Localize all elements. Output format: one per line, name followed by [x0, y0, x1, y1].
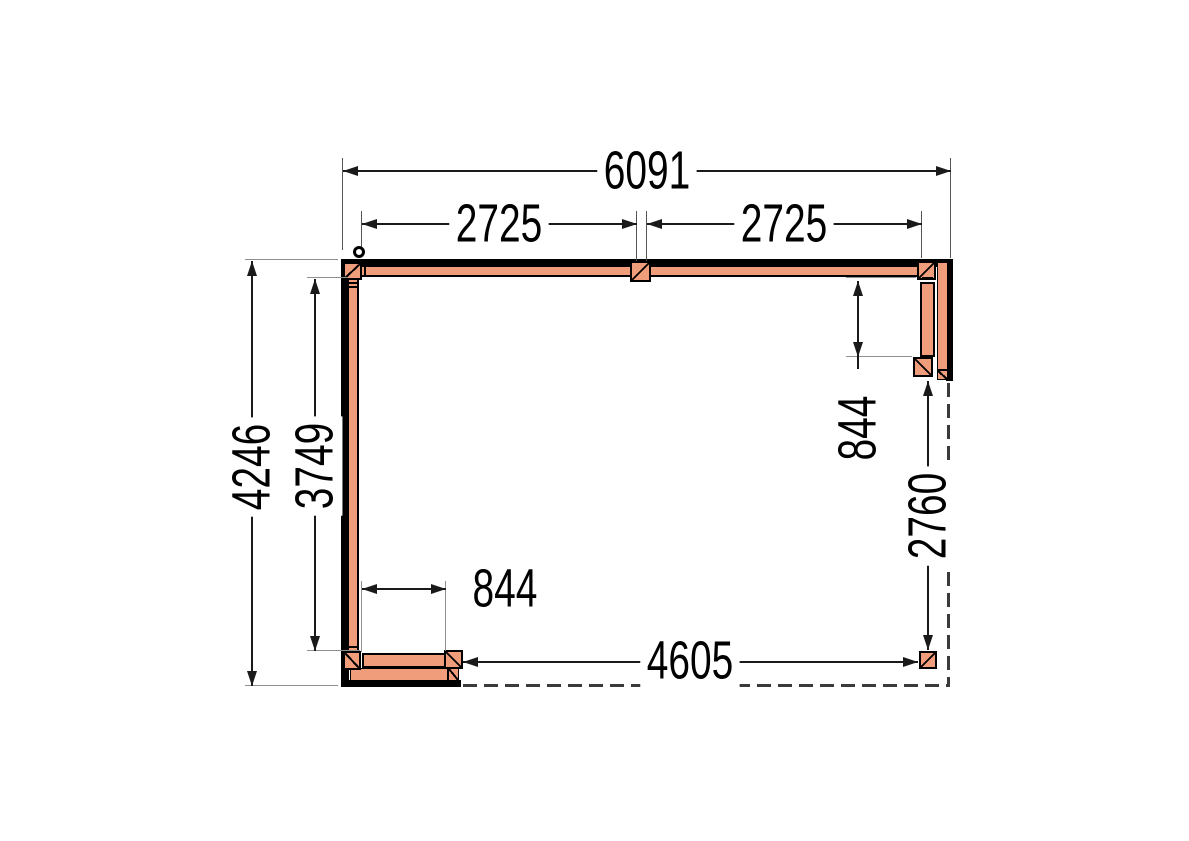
arrowhead	[362, 219, 377, 229]
arrowhead	[431, 584, 446, 594]
arrowhead	[853, 281, 863, 296]
extension-line	[245, 685, 338, 686]
arrowhead	[647, 219, 662, 229]
top-center-post	[630, 261, 651, 282]
left-wall-joint-mark	[348, 646, 359, 648]
arrowhead	[310, 636, 320, 651]
arrowhead	[936, 166, 951, 176]
arrowhead	[343, 166, 358, 176]
bottom-wall-inner-beam	[362, 653, 446, 668]
left-wall-joint-mark	[348, 286, 359, 288]
extension-line	[245, 259, 338, 260]
arrowhead	[310, 279, 320, 294]
bottom-wall-outer-beam	[350, 668, 448, 681]
extension-line	[846, 277, 916, 278]
right-wall-inner-beam	[920, 282, 935, 357]
arrowhead	[622, 219, 637, 229]
dim-bay-right-label: 2725	[734, 196, 833, 251]
bottom-left-corner-post	[343, 651, 361, 670]
arrowhead	[247, 261, 257, 276]
extension-line	[361, 211, 362, 247]
bottom-right-post	[919, 651, 937, 669]
arrowhead	[463, 657, 478, 667]
dim-right-wall-length-label: 844	[830, 389, 885, 467]
dim-bottom-open-length-label: 4605	[640, 633, 739, 688]
bottom-wall-end-post	[444, 650, 463, 669]
dim-right-open-length-label: 2760	[900, 466, 955, 565]
arrowhead	[853, 342, 863, 357]
left-wall-inner-edge	[357, 267, 359, 650]
dim-overall-depth-label: 4246	[224, 417, 279, 516]
dim-overall-width-label: 6091	[597, 143, 696, 198]
bottom-wall-end-cap	[448, 668, 459, 681]
arrowhead	[923, 381, 933, 396]
top-wall-joint-mark	[364, 266, 366, 276]
floor-plan-canvas: 6091 2725 2725 4246 3749 844 2760 844 46…	[0, 0, 1189, 841]
bottom-wall-outer-edge	[341, 680, 461, 687]
arrowhead	[903, 657, 918, 667]
dim-bottom-wall-length-label: 844	[466, 561, 544, 616]
arrowhead	[907, 219, 922, 229]
right-wall-outer-beam	[937, 262, 948, 370]
arrowhead	[247, 671, 257, 686]
right-wall-joint-mark	[922, 277, 933, 279]
corner-circle-marker	[353, 246, 365, 258]
left-wall-beam	[349, 267, 357, 650]
left-wall-joint-mark	[348, 282, 359, 284]
arrowhead	[362, 584, 377, 594]
right-wall-end-post	[913, 357, 933, 377]
dim-bay-left-label: 2725	[449, 196, 548, 251]
arrowhead	[923, 635, 933, 650]
dim-inner-depth-label: 3749	[287, 416, 342, 515]
right-wall-end-cap	[937, 370, 948, 380]
